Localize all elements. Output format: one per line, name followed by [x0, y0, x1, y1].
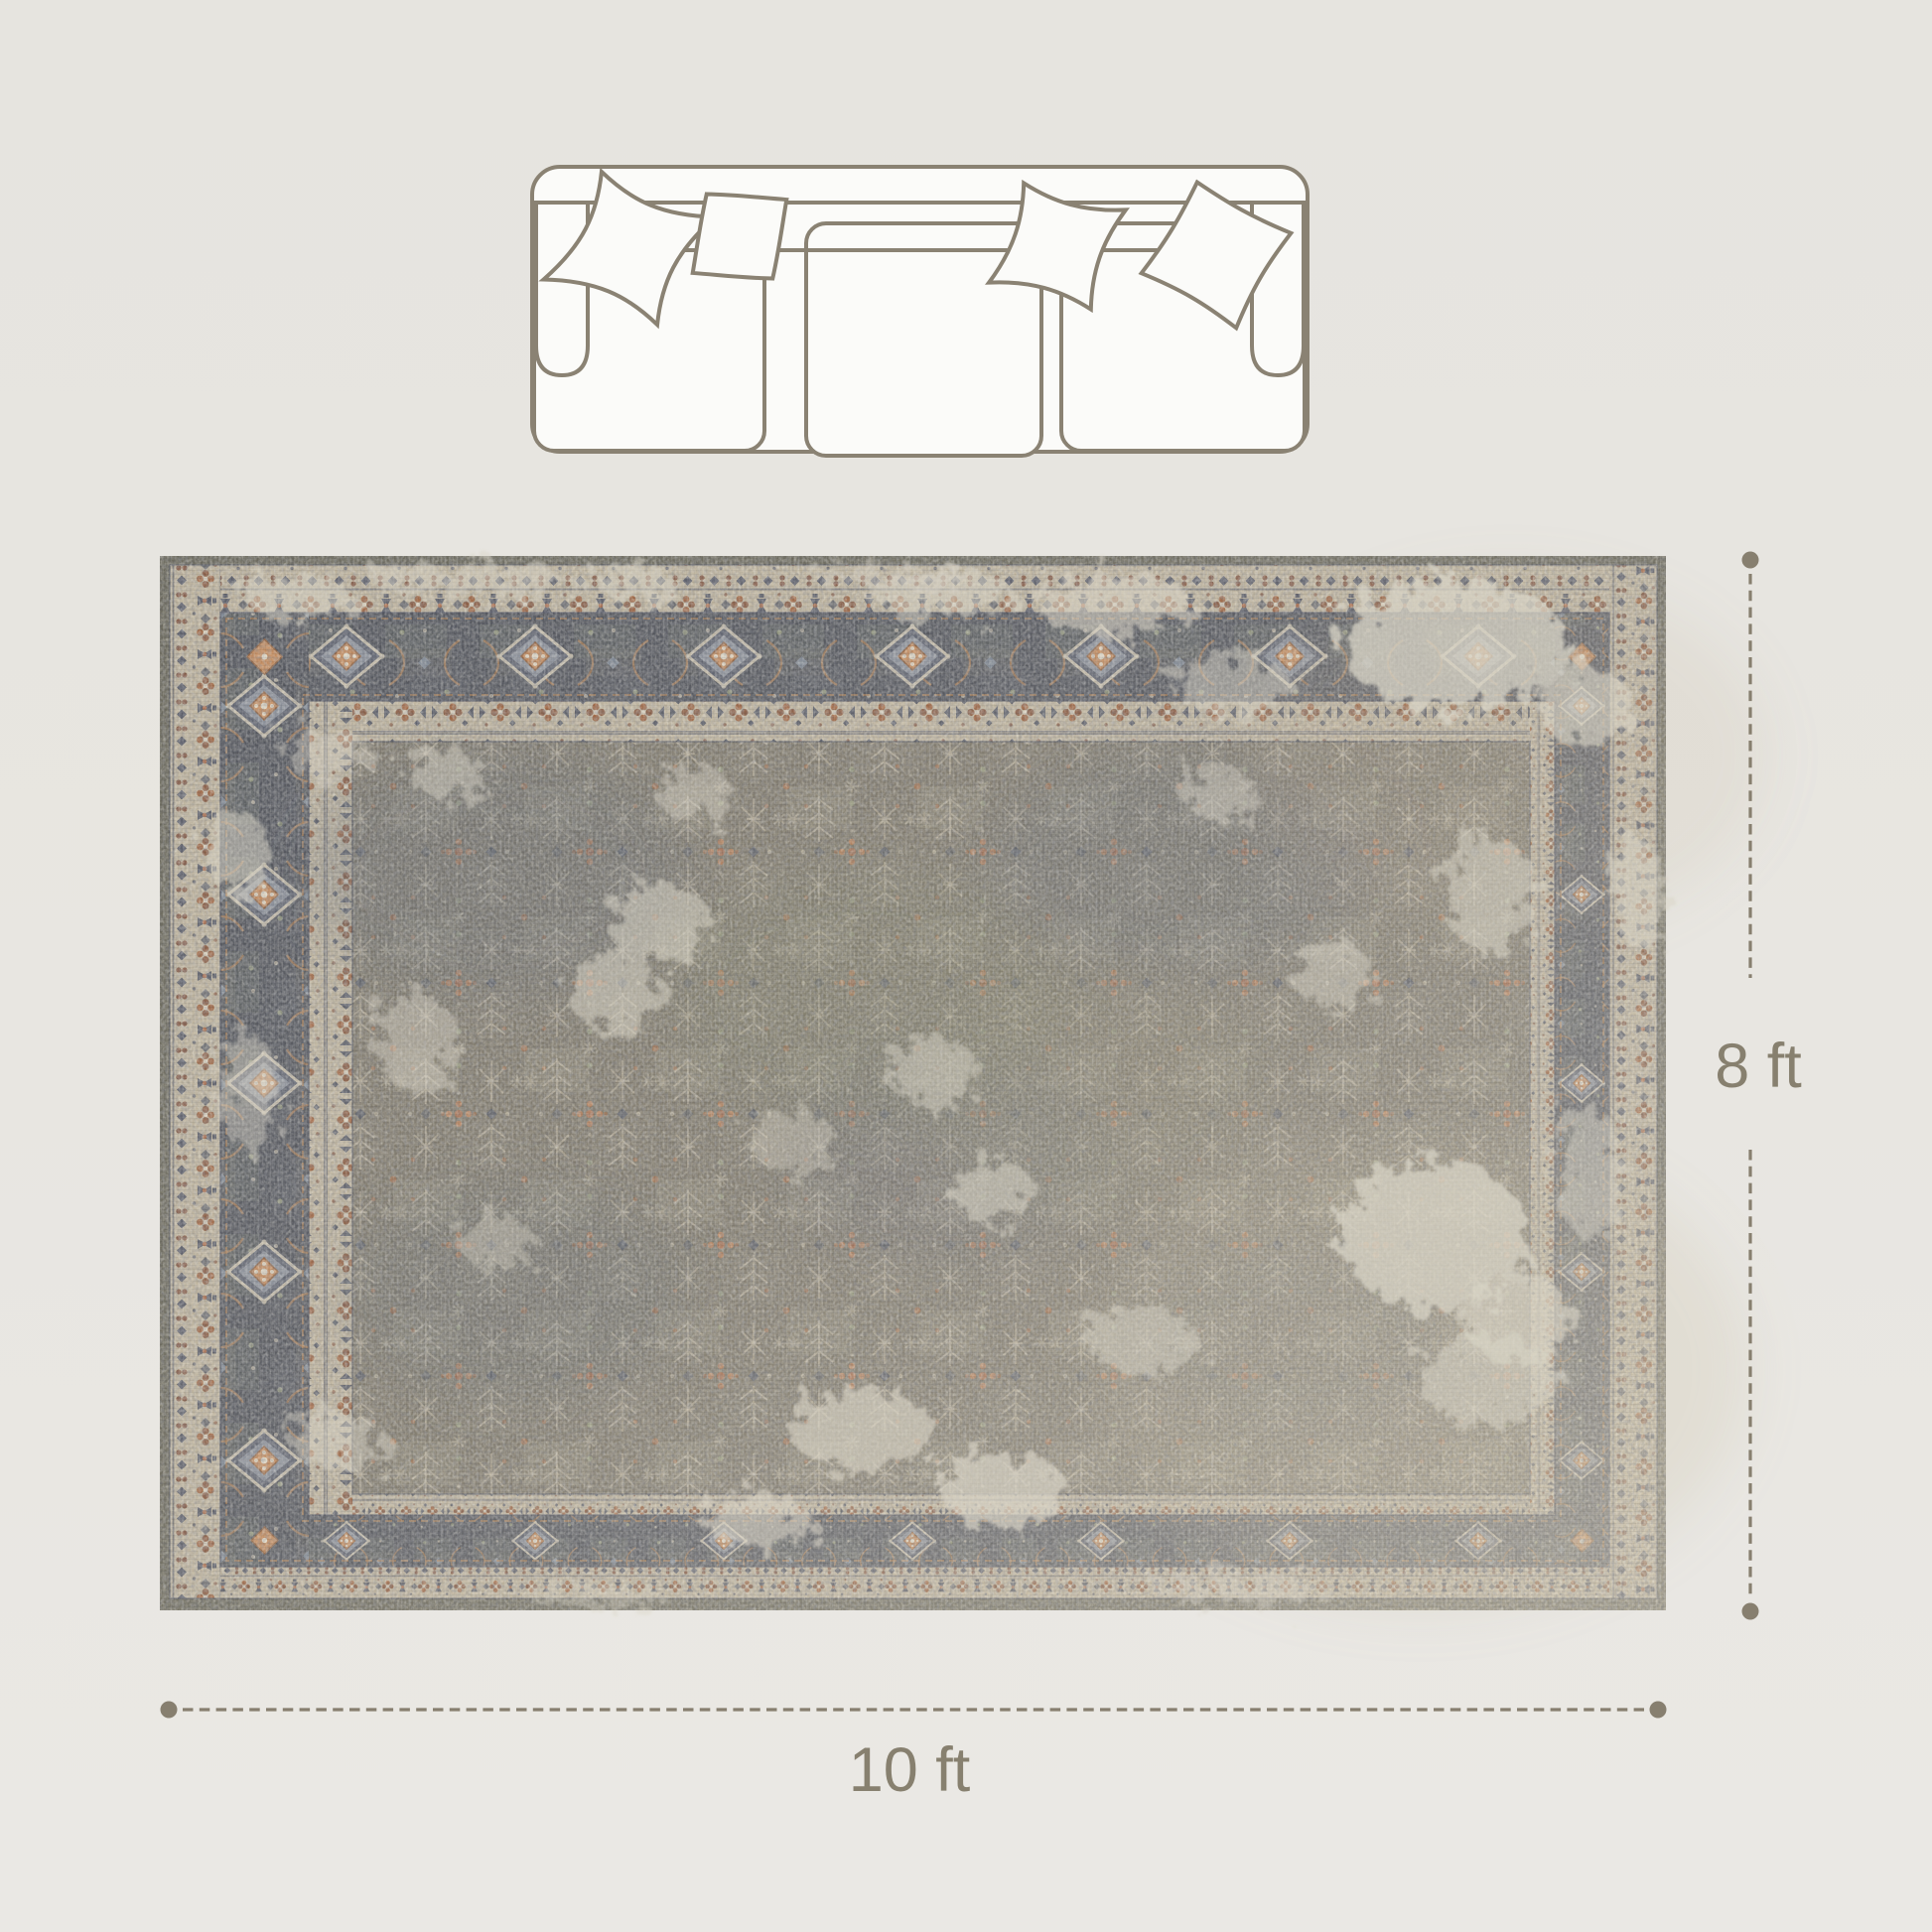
svg-text:10 ft: 10 ft — [849, 1735, 971, 1805]
svg-text:8 ft: 8 ft — [1715, 1032, 1802, 1101]
